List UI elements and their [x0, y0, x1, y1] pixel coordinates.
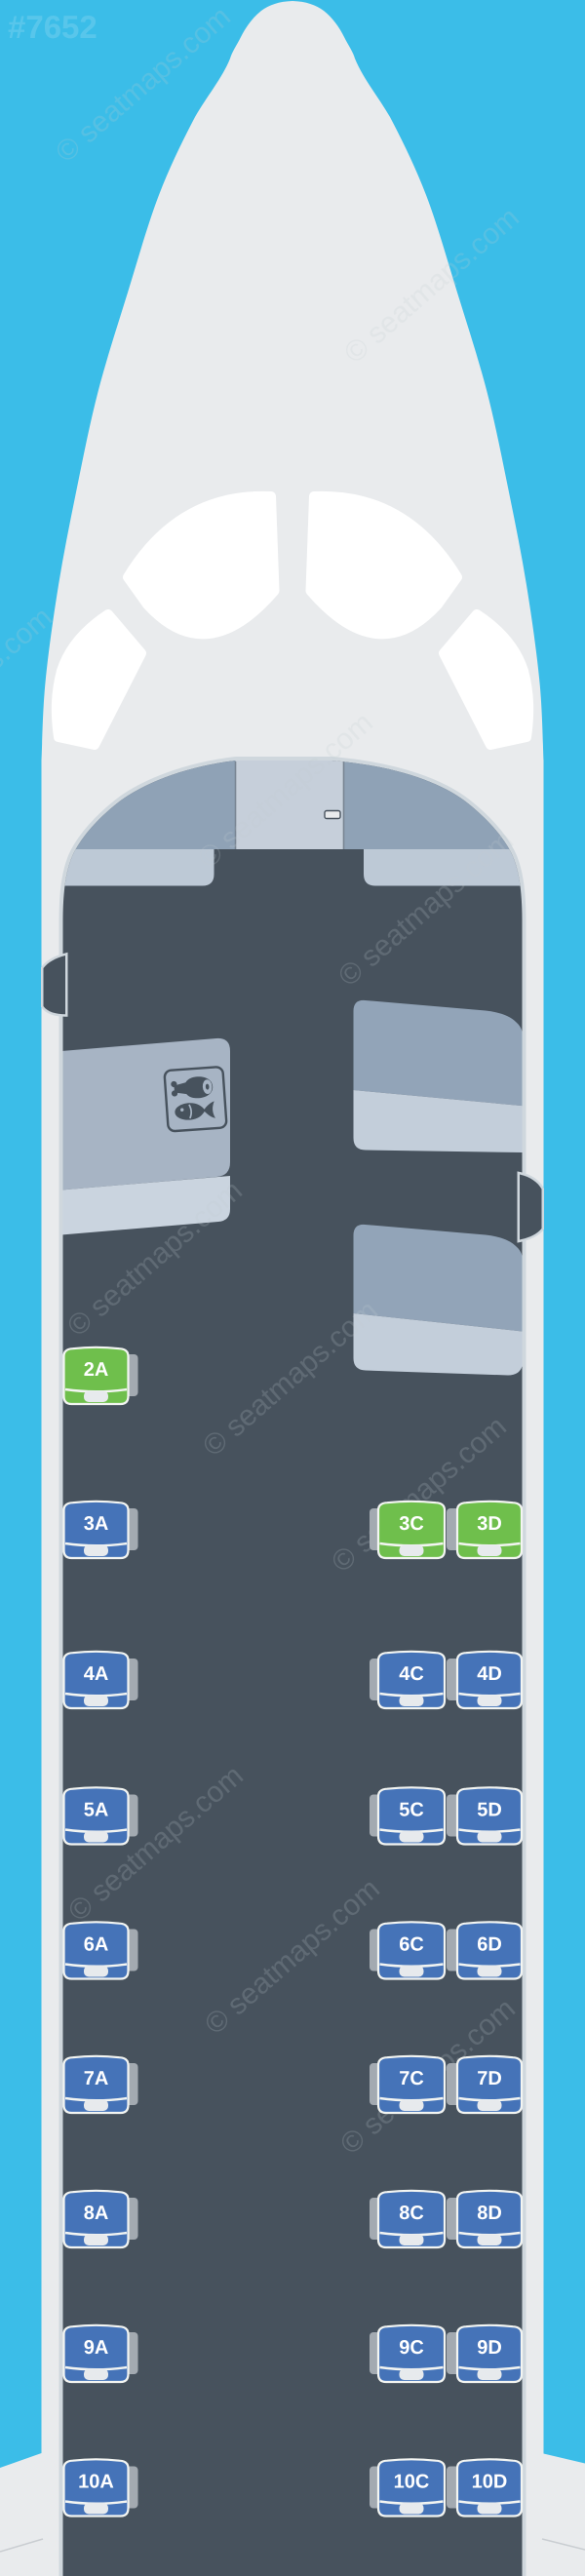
svg-text:6D: 6D — [477, 1934, 502, 1956]
svg-text:8D: 8D — [477, 2203, 502, 2224]
svg-text:4D: 4D — [477, 1663, 502, 1685]
svg-text:10D: 10D — [472, 2472, 508, 2493]
svg-text:9D: 9D — [477, 2337, 502, 2359]
svg-text:4A: 4A — [84, 1663, 109, 1685]
svg-text:9C: 9C — [399, 2337, 424, 2359]
svg-text:5D: 5D — [477, 1800, 502, 1821]
svg-text:5C: 5C — [399, 1800, 424, 1821]
svg-text:8C: 8C — [399, 2203, 424, 2224]
svg-text:9A: 9A — [84, 2337, 109, 2359]
svg-text:6A: 6A — [84, 1934, 109, 1956]
svg-text:7C: 7C — [399, 2068, 424, 2089]
svg-text:10C: 10C — [394, 2472, 430, 2493]
svg-text:8A: 8A — [84, 2203, 109, 2224]
svg-text:10A: 10A — [78, 2472, 114, 2493]
svg-text:7A: 7A — [84, 2068, 109, 2089]
svg-text:2A: 2A — [84, 1359, 109, 1381]
svg-text:6C: 6C — [399, 1934, 424, 1956]
svg-text:4C: 4C — [399, 1663, 424, 1685]
svg-text:5A: 5A — [84, 1800, 109, 1821]
svg-text:3D: 3D — [477, 1513, 502, 1535]
svg-text:3C: 3C — [399, 1513, 424, 1535]
svg-text:3A: 3A — [84, 1513, 109, 1535]
svg-text:#7652: #7652 — [8, 9, 97, 45]
svg-text:7D: 7D — [477, 2068, 502, 2089]
